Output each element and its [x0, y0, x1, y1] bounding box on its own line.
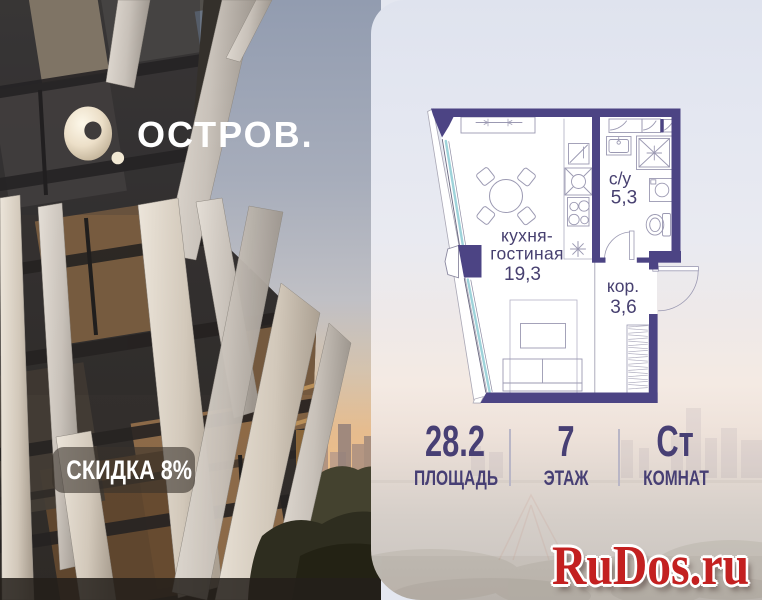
- svg-text:кор.: кор.: [607, 276, 639, 296]
- svg-text:кухня-: кухня-: [501, 226, 553, 246]
- svg-text:5,3: 5,3: [611, 188, 637, 209]
- svg-text:19,3: 19,3: [504, 264, 541, 285]
- svg-text:с/у: с/у: [609, 169, 632, 189]
- svg-text:3,6: 3,6: [610, 297, 636, 318]
- svg-text:гостиная: гостиная: [490, 244, 564, 264]
